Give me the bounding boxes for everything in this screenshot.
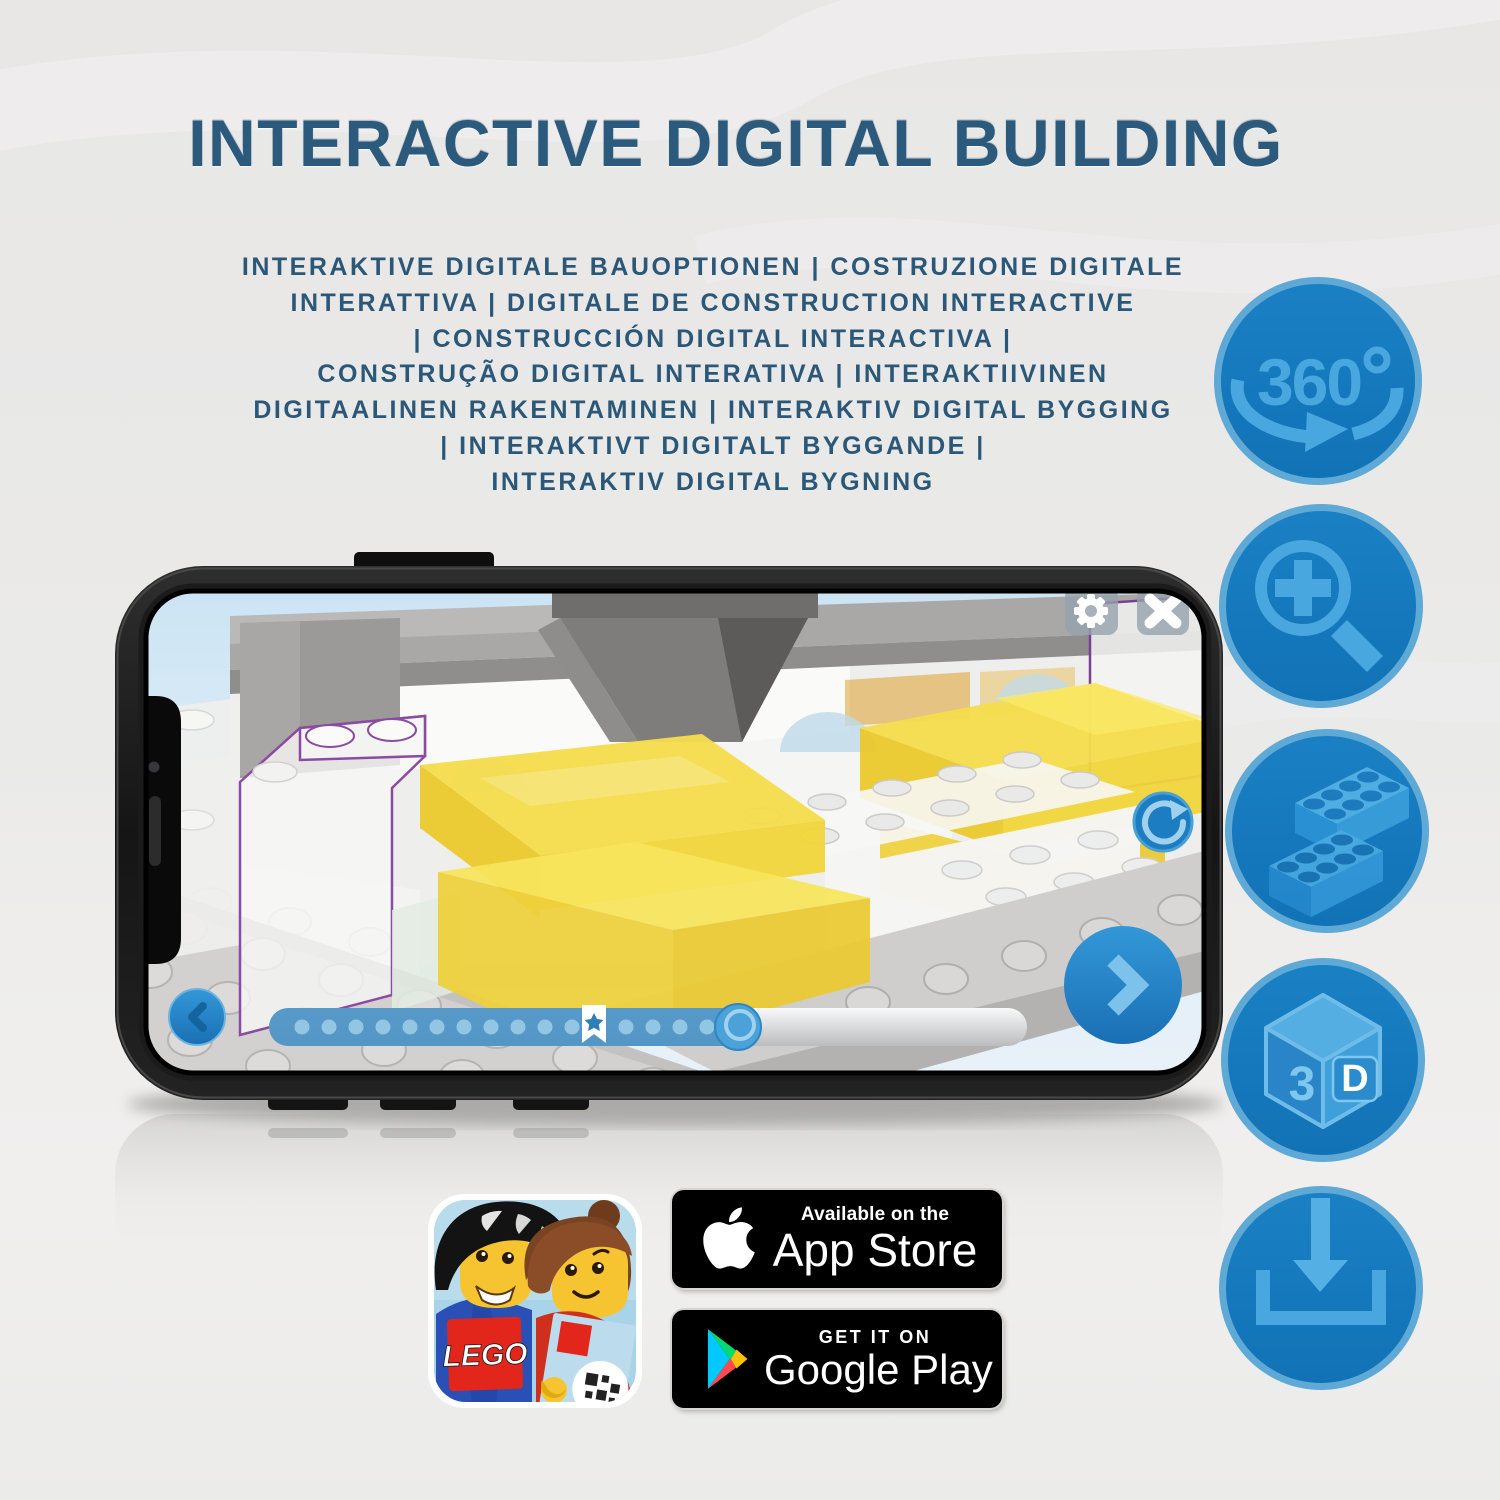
svg-text:360: 360 [1257,345,1361,419]
svg-text:LEGO: LEGO [442,1337,528,1373]
svg-text:D: D [1341,1058,1368,1100]
svg-text:3: 3 [1289,1058,1316,1111]
